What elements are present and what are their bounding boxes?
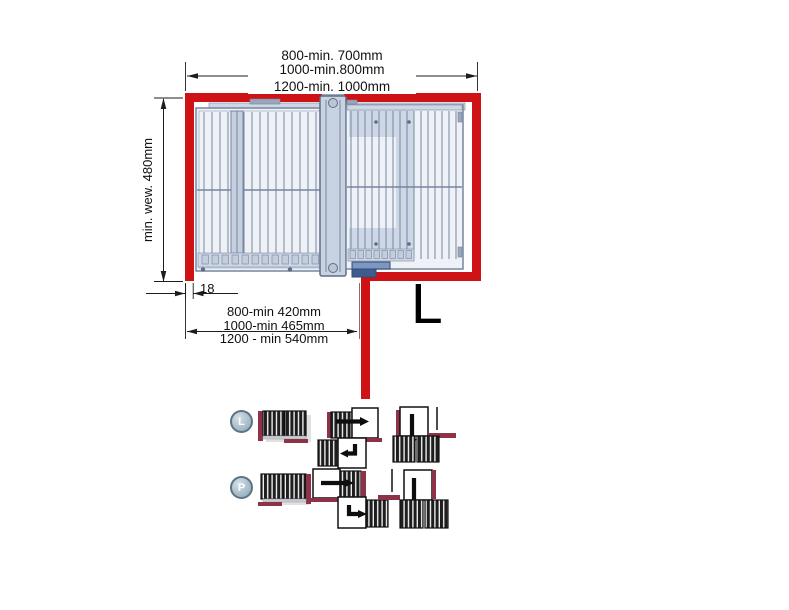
arrow-down-icon: [161, 271, 167, 282]
dimension-label: 1200-min. 1000mm: [248, 80, 416, 94]
rail-bracket: [250, 99, 280, 104]
arrow-up-icon: [161, 98, 167, 109]
arrow-right-icon: [175, 291, 185, 296]
diagram-l-front: [393, 407, 456, 462]
diagram-p-pullout: [308, 469, 388, 528]
dimension-label: 1200 - min 540mm: [220, 331, 328, 346]
wall-inner-vertical: [361, 274, 370, 399]
bottom-depth-dimensions: 800-min 420mm 1000-min 465mm 1200 - min …: [196, 305, 352, 346]
wall-left: [185, 93, 194, 281]
inner-height-dimension: min. wew. 480mm: [140, 125, 156, 255]
legend-row-right-version: [258, 469, 448, 528]
diagram-l-pullout: [318, 408, 382, 468]
dimension-label: 800-min. 700mm: [248, 49, 416, 63]
diagram-p-closed: [258, 474, 311, 506]
left-basket: [196, 108, 326, 272]
wall-thickness-dimension: 18: [200, 281, 214, 296]
pivot-column: [320, 92, 346, 276]
left-version-badge: L: [230, 410, 253, 433]
corner-pullout-installation-diagram: 800-min. 700mm 1000-min.800mm 1200-min. …: [0, 0, 789, 610]
rail-bracket: [347, 100, 357, 104]
orientation-letter: L: [411, 276, 443, 333]
right-basket: [346, 105, 463, 269]
screw-icon: [329, 264, 338, 273]
right-version-badge: P: [230, 476, 253, 499]
dimension-label: 1000-min.800mm: [248, 63, 416, 77]
arrow-right-icon: [466, 73, 477, 79]
pullout-mechanism: [196, 92, 465, 277]
top-width-dimensions: 800-min. 700mm 1000-min.800mm 1200-min. …: [248, 49, 416, 94]
arrow-left-icon: [187, 73, 198, 79]
screw-icon: [329, 99, 338, 108]
wall-right: [472, 93, 481, 281]
legend-row-left-version: [258, 407, 456, 468]
diagram-l-closed: [258, 411, 311, 443]
